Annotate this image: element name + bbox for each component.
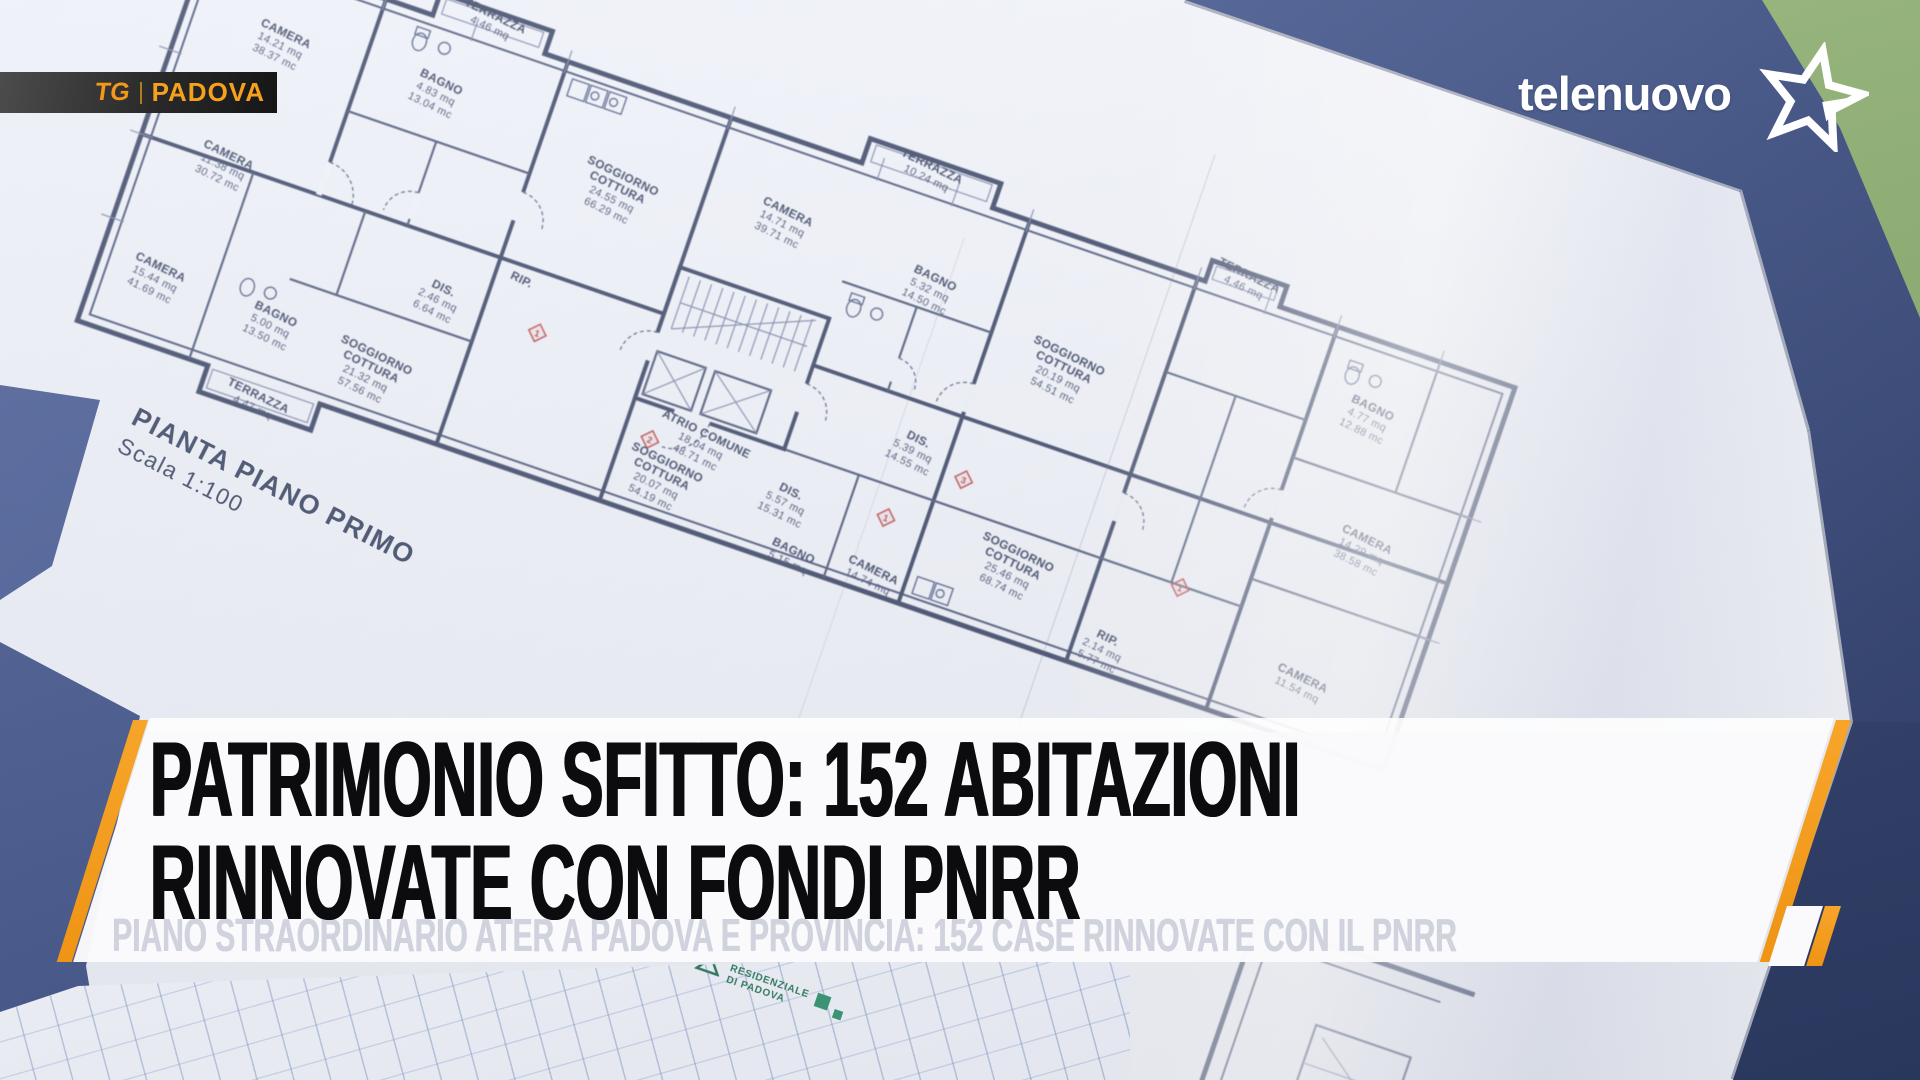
svg-text:CAMERA11.38 mq30.72 mc: CAMERA11.38 mq30.72 mc	[190, 136, 256, 195]
kitchen-fixtures	[450, 79, 1070, 606]
svg-text:SOGGIORNOCOTTURA21.32 mq57.56: SOGGIORNOCOTTURA21.32 mq57.56 mc	[322, 331, 415, 412]
tv-frame: 1 2 1 3 1 CAMERA14.21 mq38.37 mcBAGNO4.8…	[0, 0, 1920, 1080]
headline-line1: PATRIMONIO SFITTO: 152 ABITAZIONI	[150, 728, 1300, 831]
svg-text:BAGNO5.00 mq13.50 mc: BAGNO5.00 mq13.50 mc	[240, 297, 300, 354]
svg-text:CAMERA15.44 mq41.69 mc: CAMERA15.44 mq41.69 mc	[122, 249, 188, 308]
svg-text:SOGGIORNOCOTTURA20.19 mq54.51: SOGGIORNOCOTTURA20.19 mq54.51 mc	[1015, 332, 1108, 413]
badge-separator	[140, 82, 142, 104]
tg-padova-badge: TG PADOVA	[0, 72, 277, 113]
svg-text:BAGNO4.83 mq13.04 mc: BAGNO4.83 mq13.04 mc	[406, 65, 466, 122]
telenuovo-star-icon	[1757, 42, 1869, 152]
badge-region-label: PADOVA	[152, 77, 265, 108]
svg-text:CAMERA14.21 mq38.37 mc: CAMERA14.21 mq38.37 mc	[247, 15, 313, 74]
svg-text:DIS.5.57 mq15.31 mc: DIS.5.57 mq15.31 mc	[755, 474, 815, 531]
svg-text:SOGGIORNOCOTTURA24.55 mq66.29: SOGGIORNOCOTTURA24.55 mq66.29 mc	[568, 152, 661, 233]
telenuovo-wordmark: telenuovo	[1518, 66, 1731, 121]
svg-text:CAMERA14.71 mq39.71 mc: CAMERA14.71 mq39.71 mc	[750, 193, 816, 252]
svg-text:DIS.2.46 mq6.64 mc: DIS.2.46 mq6.64 mc	[411, 273, 466, 327]
svg-text:SOGGIORNOCOTTURA25.46 mq68.74: SOGGIORNOCOTTURA25.46 mq68.74 mc	[964, 528, 1057, 609]
svg-text:BAGNO4.77 mq12.88 mc: BAGNO4.77 mq12.88 mc	[1337, 391, 1397, 448]
room-labels: CAMERA14.21 mq38.37 mcBAGNO4.83 mq13.04 …	[95, 0, 1466, 784]
svg-text:CAMERA14.29 mq38.58 mc: CAMERA14.29 mq38.58 mc	[1329, 521, 1395, 580]
svg-text:CAMERA11.54 mq: CAMERA11.54 mq	[1270, 660, 1331, 708]
floor-plan-drawing: 1 2 1 3 1 CAMERA14.21 mq38.37 mcBAGNO4.8…	[11, 0, 1563, 814]
svg-text:RIP.: RIP.	[508, 268, 535, 291]
svg-text:TERRAZZA4.46 mq: TERRAZZA4.46 mq	[457, 0, 529, 48]
headline-line2: RINNOVATE CON FONDI PNRR	[150, 831, 1300, 934]
tg-logo: TG	[93, 78, 132, 107]
headline: PATRIMONIO SFITTO: 152 ABITAZIONI RINNOV…	[150, 728, 1920, 934]
